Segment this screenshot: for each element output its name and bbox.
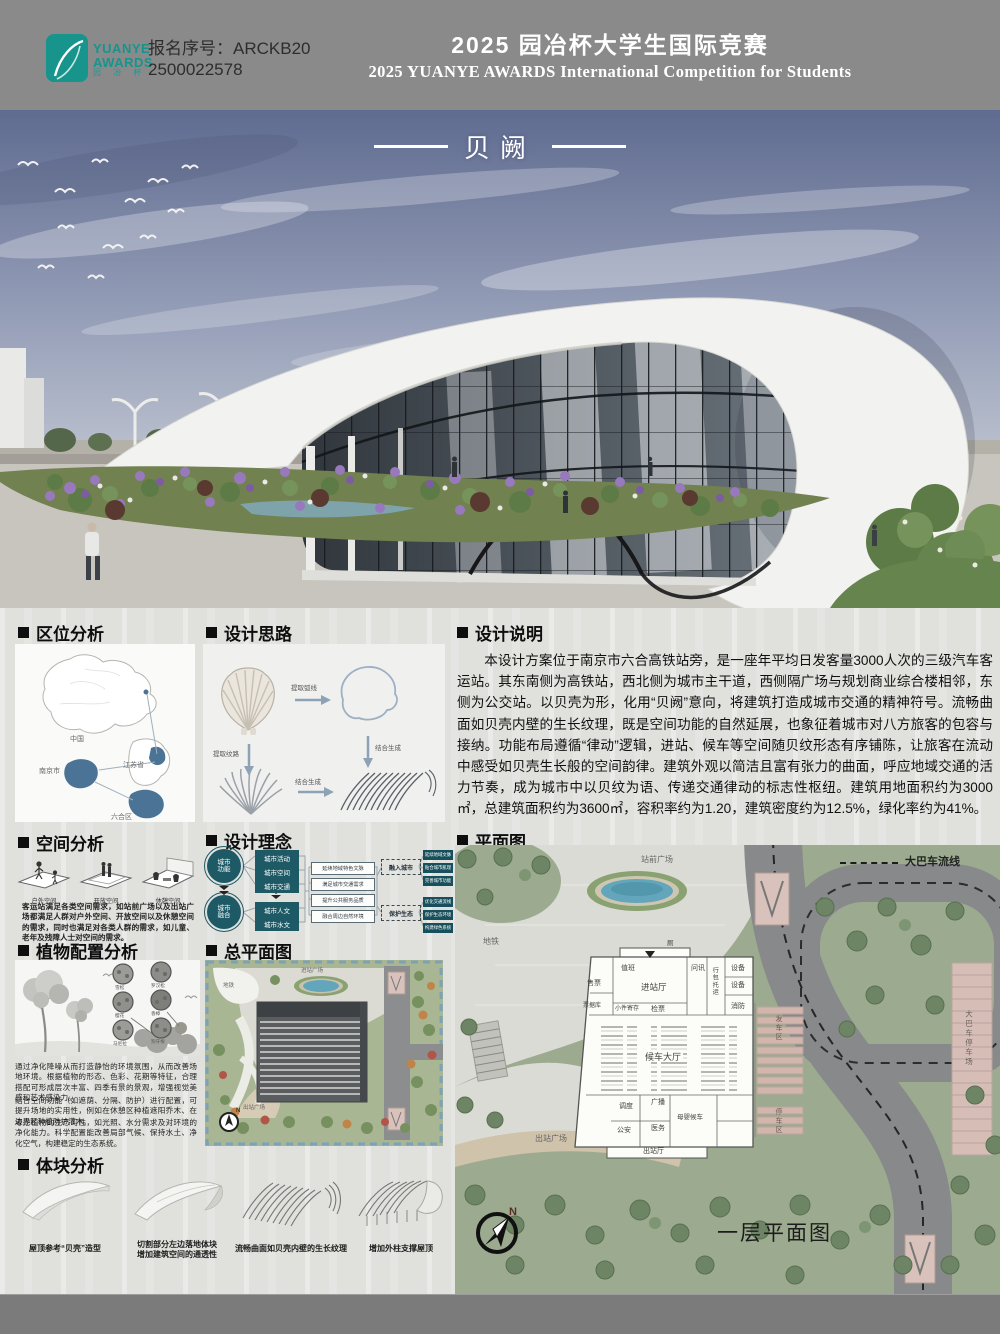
room-label: 调度 [619,1103,633,1110]
mini-north-label: N [236,1108,240,1114]
outdoor-space-sketch [15,850,73,890]
room-label: 医务 [651,1125,665,1132]
factor-box: 城市人文 [255,902,299,917]
room-label: 检票 [651,1006,665,1013]
registration-label: 报名序号：ARCKB20 [148,38,310,59]
outcome-box: 构建绿色系统 [423,923,453,933]
idea-diagram-graphic [203,644,445,822]
space-diagram-open: 开放空间 [77,850,135,905]
room-label: 出站厅 [643,1148,664,1155]
shell-photo [222,668,275,735]
registration-number: 2500022578 [148,59,310,80]
description-body: 本设计方案位于南京市六合高铁站旁，是一座年平均日发客量3000人次的三级汽车客运… [457,650,993,820]
planting-paragraph-3: 考虑植物的生态习性，如光照、水分需求及对环境的净化能力。科学配置能改善局部气候、… [15,1118,197,1149]
philosophy-circle-top: 城市 功能 [207,849,241,883]
factor-box: 城市交通 [255,878,299,893]
yuanye-logo-icon [46,34,88,82]
registration: 报名序号：ARCKB20 2500022578 [148,38,310,81]
section-location-title: 区位分析 [36,620,104,645]
massing-caption-3: 流畅曲面如贝壳内壁的生长纹理 [231,1244,351,1254]
location-map: 中国 江苏省 南京市 六合区 [15,644,195,822]
station-plaza-label: 站前广场 [641,856,673,864]
plant-label: 香樟 [151,1012,160,1017]
exit-plaza-label: 出站广场 [535,1135,567,1143]
competition-title-en: 2025 YUANYE AWARDS International Competi… [310,62,910,82]
first-floor-plan: 大巴车流线 站前广场 地铁 出站广场 大巴车停车场 发车区 停车区 售票 票据库… [455,845,1000,1294]
factor-box: 城市活动 [255,850,299,865]
header-bar: YUANYE AWARDS 园 冶 杯 报名序号：ARCKB20 2500022… [0,0,1000,110]
room-label: 问讯 [691,965,705,972]
brand-text: YUANYE AWARDS 园 冶 杯 [93,42,153,78]
massing-caption-4: 增加外柱支撑屋顶 [349,1244,453,1254]
outcome-box: 贴合城市肌理 [423,863,453,873]
metro-label: 地铁 [483,938,499,946]
title-line-left [374,145,448,148]
room-label: 厕 [667,941,674,948]
section-description-title: 设计说明 [475,620,543,645]
footer-band [0,1294,1000,1334]
space-diagram-outdoor: 户外空间 [15,850,73,905]
competition-poster: YUANYE AWARDS 园 冶 杯 报名序号：ARCKB20 2500022… [0,0,1000,1334]
room-label: 售票 [587,980,601,987]
strategy-box: 融合周边自然环境 [311,910,375,923]
massing-step-3: 流畅曲面如贝壳内壁的生长纹理 [239,1172,343,1239]
philosophy-circle-bottom: 城市 融合 [207,895,241,929]
outcome-box: 延续地域文脉 [423,850,453,860]
competition-title-cn: 2025 园冶杯大学生国际竞赛 [330,26,890,60]
mini-entry-plaza-label: 进站广场 [301,969,323,975]
outcome-box: 优化交通流线 [423,897,453,907]
rib-fan [220,767,282,814]
idea-step-texture: 提取纹路 [213,752,239,759]
room-label: 小件寄存 [615,1006,639,1012]
massing-caption-2: 切割部分左边落地体块 增加建筑空间的通透性 [121,1240,233,1261]
room-label: 设备 [731,965,745,972]
park-zone-label: 停车区 [775,1108,782,1142]
room-label: 公安 [617,1127,631,1134]
brand-cn: 园 冶 杯 [93,69,153,77]
arrow-down-icon [217,886,231,896]
planting-illustration: 雪松 罗汉松 樱花 香樟 马尼拉 狗牙根 [15,960,200,1056]
bus-park-label: 大巴车停车场 [965,1010,973,1110]
factor-box: 城市空间 [255,864,299,879]
room-label: 候车大厅 [643,1053,683,1062]
factor-box: 城市水文 [255,916,299,931]
plan-north-label: N [509,1207,517,1218]
master-plan: 进站广场 地铁 出站广场 N [205,960,443,1146]
mini-compass [220,1113,238,1131]
outcome-box: 保护生态环境 [423,910,453,920]
room-label: 值班 [621,965,635,972]
open-space-sketch [77,850,135,890]
space-diagrams: 户外空间 开放空间 休憩空间 [15,850,197,905]
mini-metro-label: 地铁 [223,984,234,990]
project-title: 贝阙 [464,128,536,165]
mini-building [257,1002,367,1102]
room-label: 进站厅 [641,983,667,992]
plant-label: 狗牙根 [151,1040,165,1045]
floor-plan-caption: 一层平面图 [717,1223,832,1244]
canopy-curves [341,770,436,810]
massing-step-2: 切割部分左边落地体块 增加建筑空间的通透性 [127,1172,227,1239]
idea-diagram: 提取弧线 提取纹路 结合生成 结合生成 [203,644,445,822]
room-label: 设备 [731,982,745,989]
plant-label: 樱花 [115,1014,124,1019]
massing-sketch-3 [239,1172,343,1234]
brand-line1: YUANYE [93,42,153,56]
plant-label: 马尼拉 [113,1042,127,1047]
room-label: 广播 [651,1099,665,1106]
space-diagram-rest: 休憩空间 [139,850,197,905]
strategy-box: 延续地域特色文脉 [311,862,375,875]
massing-sketch-1 [15,1172,115,1234]
region-label-china: 中国 [70,736,84,743]
idea-step-generate1: 结合生成 [375,746,401,753]
room-label: 母婴候车 [677,1115,703,1122]
master-plan-graphic [205,960,443,1146]
outcome-box: 完善城市功能 [423,876,453,886]
title-line-right [552,145,626,148]
idea-step-generate2: 结合生成 [295,780,321,787]
rest-space-sketch [139,850,197,890]
room-label: 票据库 [583,1003,601,1009]
location-map-graphic [15,644,195,822]
project-title-band: 贝阙 [0,128,1000,165]
room-label: 消防 [731,1003,745,1010]
massing-step-1: 屋顶参考“贝壳”造型 [15,1172,115,1239]
space-caption: 客运站满足各类空间需求，如站前广场以及出站广场都满足人群对户外空间、开放空间以及… [22,902,194,944]
room-label: 行包托运 [711,967,717,1011]
massing-analysis: 屋顶参考“贝壳”造型 切割部分左边落地体块 增加建筑空间的通透性 流畅曲面如贝壳… [15,1172,447,1280]
strategy-box: 提升公共服务品质 [311,894,375,907]
region-label-luhe: 六合区 [111,814,132,821]
massing-sketch-2 [127,1172,227,1234]
legend-bus-route: 大巴车流线 [905,857,960,868]
region-label-jiangsu: 江苏省 [123,762,144,769]
philosophy-flowchart: 城市 功能 城市 融合 城市活动 城市空间 城市交通 城市人文 城市水文 延续地… [203,846,453,936]
massing-caption-1: 屋顶参考“贝壳”造型 [15,1244,115,1254]
massing-sketch-4 [353,1172,449,1234]
idea-step-arc: 提取弧线 [291,686,317,693]
strategy-box: 满足城市交通需求 [311,878,375,891]
massing-step-4: 增加外柱支撑屋顶 [353,1172,449,1239]
mini-exit-plaza-label: 出站广场 [243,1106,265,1112]
depart-zone-label: 发车区 [775,1015,782,1061]
section-idea-title: 设计思路 [224,620,292,645]
plant-label: 雪松 [115,986,124,991]
planting-scene [15,960,200,1056]
goal-box: 保护生态 [381,905,421,921]
goal-box: 融入城市 [381,859,421,875]
hero-render [0,110,1000,608]
shell-outline [342,667,397,720]
plant-label: 罗汉松 [151,984,165,989]
legend-dash-line [840,862,898,864]
region-label-nanjing: 南京市 [39,768,60,775]
